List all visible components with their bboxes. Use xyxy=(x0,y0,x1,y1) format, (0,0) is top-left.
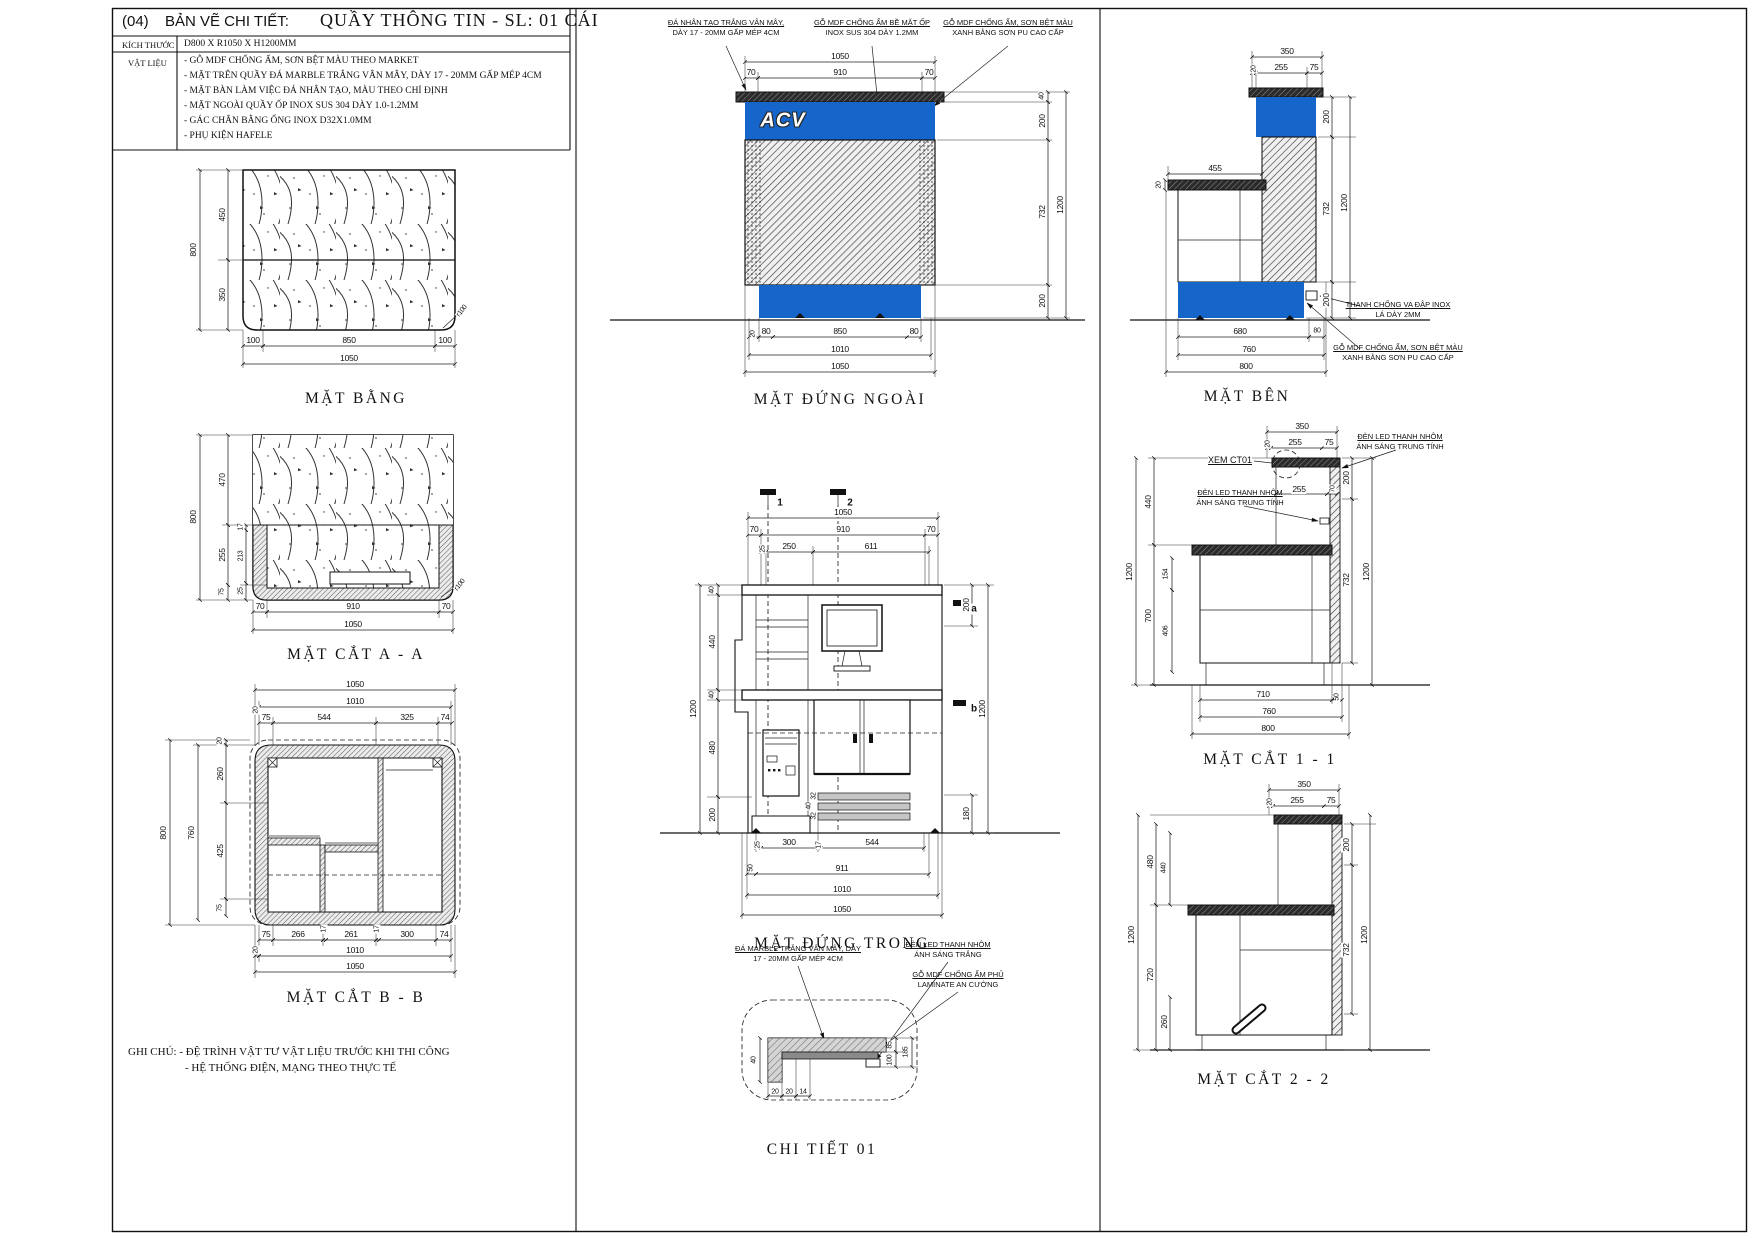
drawing-sheet: (04) BẢN VẼ CHI TIẾT: QUẦY THÔNG TIN - S… xyxy=(0,0,1755,1240)
callout-led: ĐÈN LED THANH NHÔM ÁNH SÁNG TRẮNG xyxy=(905,940,990,960)
callout-led: ĐÈN LED THANH NHÔM ÁNH SÁNG TRUNG TÍNH xyxy=(1196,488,1283,508)
callout-text: ĐÈN LED THANH NHÔM xyxy=(1356,432,1443,442)
view-label-mat-cat-11: MẶT CẮT 1 - 1 xyxy=(1203,751,1337,769)
callout-text: LÁ DÀY 2MM xyxy=(1346,310,1451,320)
dim-label: 732 xyxy=(1341,572,1351,587)
dim-label: 74 xyxy=(439,929,450,939)
callout-mdf-blue: GỖ MDF CHỐNG ẨM, SƠN BỆT MÀU XANH BẰNG S… xyxy=(943,18,1073,38)
dim-label: 74 xyxy=(440,712,451,722)
mat-cat-aa-drawing xyxy=(196,435,455,634)
dim-label: 1200 xyxy=(1359,925,1369,945)
dim-label: 25 xyxy=(760,544,767,553)
callout-text: ÁNH SÁNG TRUNG TÍNH xyxy=(1356,442,1443,452)
dim-label: 732 xyxy=(1341,942,1351,957)
dim-label: 850 xyxy=(341,335,356,345)
dim-label: 70 xyxy=(255,601,266,611)
dim-label: 350 xyxy=(217,287,227,302)
dim-label: 800 xyxy=(158,825,168,840)
dim-label: 213 xyxy=(238,550,245,563)
callout-text: DÀY 17 - 20MM GẤP MÉP 4CM xyxy=(668,28,784,38)
callout-text: ĐÁ NHÂN TẠO TRẮNG VÂN MÂY, xyxy=(668,18,784,28)
detail-reference: XEM CT01 xyxy=(1208,455,1252,465)
callout-stone: ĐÁ NHÂN TẠO TRẮNG VÂN MÂY, DÀY 17 - 20MM… xyxy=(668,18,784,38)
dim-label: 200 xyxy=(1341,837,1351,852)
dim-label: 300 xyxy=(781,837,796,847)
callout-text: XANH BẰNG SƠN PU CAO CẤP xyxy=(1333,353,1463,363)
callout-inox: GỖ MDF CHỐNG ẨM BỀ MẶT ỐP INOX SUS 304 D… xyxy=(814,18,930,38)
dim-label: 760 xyxy=(1241,344,1256,354)
view-label-mat-cat-22: MẶT CẮT 2 - 2 xyxy=(1197,1071,1331,1089)
dim-label: 710 xyxy=(1255,689,1270,699)
size-value: D800 X R1050 X H1200MM xyxy=(184,39,296,49)
dim-label: 800 xyxy=(1238,361,1253,371)
dim-label: 255 xyxy=(217,547,227,562)
dim-label: 20 xyxy=(1265,439,1272,448)
dim-label: 1010 xyxy=(345,945,365,955)
dim-label: 455 xyxy=(1207,163,1222,173)
callout-text: ĐÈN LED THANH NHÔM xyxy=(1196,488,1283,498)
material-line: - GÁC CHÂN BẰNG ỐNG INOX D32X1.0MM xyxy=(184,116,372,126)
dim-label: 50 xyxy=(748,863,755,872)
dim-label: 70 xyxy=(926,524,937,534)
dim-label: 1200 xyxy=(977,699,987,719)
dim-label: 75 xyxy=(1309,62,1320,72)
dim-label: 20 xyxy=(750,329,757,338)
dim-label: 200 xyxy=(707,807,717,822)
dim-label: 440 xyxy=(1161,862,1168,875)
dim-label: 470 xyxy=(217,472,227,487)
callout-inox-guard: THANH CHỐNG VA ĐẬP INOX LÁ DÀY 2MM xyxy=(1346,300,1451,320)
dim-label: 40 xyxy=(751,1055,758,1064)
dim-label: 75 xyxy=(261,929,272,939)
dim-label: 850 xyxy=(832,326,847,336)
dim-label: 680 xyxy=(1232,326,1247,336)
dim-label: 425 xyxy=(215,843,225,858)
sheet-title: QUẦY THÔNG TIN - SL: 01 CÁI xyxy=(320,10,599,31)
dim-label: 75 xyxy=(261,712,272,722)
callout-text: GỖ MDF CHỐNG ẨM PHỦ xyxy=(912,970,1003,980)
dim-label: 25 xyxy=(238,586,245,595)
callout-text: INOX SUS 304 DÀY 1.2MM xyxy=(814,28,930,38)
dim-label: 50 xyxy=(1334,692,1341,701)
dim-label: 732 xyxy=(1037,204,1047,219)
dim-label: 20 xyxy=(784,1089,793,1096)
dim-label: 75 xyxy=(1326,795,1337,805)
dim-label: 800 xyxy=(188,509,198,524)
dim-label: 75 xyxy=(1324,437,1335,447)
mat-ben-drawing xyxy=(1130,51,1430,377)
dim-label: 760 xyxy=(1261,706,1276,716)
dim-label: 180 xyxy=(961,806,971,821)
dim-label: 800 xyxy=(1260,723,1275,733)
dim-label: 70 xyxy=(924,67,935,77)
dim-label: 200 xyxy=(1037,293,1047,308)
dim-label: 350 xyxy=(1296,779,1311,789)
dim-label: 1050 xyxy=(830,51,850,61)
dim-label: 406 xyxy=(1163,625,1170,638)
callout-text: 17 - 20MM GẤP MÉP 4CM xyxy=(735,954,861,964)
dim-label: 1200 xyxy=(1055,195,1065,215)
dim-label: 544 xyxy=(864,837,879,847)
dim-label: 1010 xyxy=(830,344,850,354)
dim-label: 40 xyxy=(806,801,813,810)
view-label-chi-tiet-01: CHI TIẾT 01 xyxy=(767,1141,877,1159)
dim-label: 1200 xyxy=(1339,193,1349,213)
dim-label: 70 xyxy=(746,67,757,77)
dim-label: 1200 xyxy=(1126,925,1136,945)
dim-label: 1050 xyxy=(343,619,363,629)
mat-cat-bb-drawing xyxy=(165,684,460,978)
dim-label: 1050 xyxy=(345,961,365,971)
dim-label: 17 xyxy=(374,924,381,933)
dim-label: 85 xyxy=(887,1040,894,1049)
dim-label: 480 xyxy=(1145,854,1155,869)
view-label-mat-dung-ngoai: MẶT ĐỨNG NGOÀI xyxy=(754,391,926,409)
dim-label: 100 xyxy=(887,1054,894,1067)
dim-label: 20 xyxy=(1251,64,1258,73)
callout-text: ÁNH SÁNG TRUNG TÍNH xyxy=(1196,498,1283,508)
dim-label: 20 xyxy=(253,705,260,714)
dim-label: 800 xyxy=(188,242,198,257)
callout-text: XANH BẰNG SƠN PU CAO CẤP xyxy=(943,28,1073,38)
mat-dung-trong-drawing xyxy=(660,489,1060,919)
dim-label: 910 xyxy=(832,67,847,77)
dim-label: 70 xyxy=(441,601,452,611)
dim-label: 200 xyxy=(1321,292,1331,307)
dim-label: 266 xyxy=(290,929,305,939)
dim-label: 1050 xyxy=(339,353,359,363)
dim-label: 255 xyxy=(1287,437,1302,447)
dim-label: 1200 xyxy=(1361,562,1371,582)
dim-label: 80 xyxy=(761,326,772,336)
view-label-mat-ben: MẶT BÊN xyxy=(1204,388,1291,406)
dim-label: 440 xyxy=(707,634,717,649)
material-label: VẬT LIỆU xyxy=(128,58,167,68)
dim-label: 732 xyxy=(1321,201,1331,216)
dim-label: 100 xyxy=(437,335,452,345)
dim-label: 910 xyxy=(345,601,360,611)
dim-label: 700 xyxy=(1143,608,1153,623)
dim-label: 70 xyxy=(1330,484,1337,493)
dim-label: 17 xyxy=(816,840,823,849)
size-label: KÍCH THƯỚC xyxy=(122,40,174,50)
callout-led: ĐÈN LED THANH NHÔM ÁNH SÁNG TRUNG TÍNH xyxy=(1356,432,1443,452)
dim-label: 14 xyxy=(798,1089,807,1096)
mat-cat-22-drawing xyxy=(1133,784,1430,1050)
dim-label: 17 xyxy=(321,924,328,933)
callout-text: LAMINATE AN CƯỜNG xyxy=(912,980,1003,990)
dim-label: 25 xyxy=(755,840,762,849)
dim-label: 75 xyxy=(219,587,226,596)
dim-label: 200 xyxy=(1321,109,1331,124)
dim-label: 185 xyxy=(903,1046,910,1059)
dim-label: 611 xyxy=(864,541,879,551)
dim-label: 1200 xyxy=(688,699,698,719)
dim-label: 480 xyxy=(707,740,717,755)
dim-label: 154 xyxy=(1163,568,1170,581)
dim-label: 250 xyxy=(781,541,796,551)
dim-label: 1010 xyxy=(345,696,365,706)
dim-label: 300 xyxy=(399,929,414,939)
dim-label: 350 xyxy=(1294,421,1309,431)
dim-label: 40 xyxy=(709,690,716,699)
dim-label: 20 xyxy=(217,736,224,745)
dim-label: 1200 xyxy=(1124,562,1134,582)
note-line-2: - HỆ THỐNG ĐIỆN, MẠNG THEO THỰC TẾ xyxy=(185,1062,396,1074)
dim-label: 440 xyxy=(1143,494,1153,509)
dim-label: 1050 xyxy=(345,679,365,689)
dim-label: 544 xyxy=(316,712,331,722)
callout-text: GỖ MDF CHỐNG ẨM, SƠN BỆT MÀU xyxy=(943,18,1073,28)
dim-label: 70 xyxy=(749,524,760,534)
dim-label: 40 xyxy=(709,585,716,594)
material-line: - MẶT TRÊN QUẦY ĐÁ MARBLE TRẮNG VÂN MÂY,… xyxy=(184,71,542,81)
dim-label: 200 xyxy=(1037,113,1047,128)
callout-text: GỖ MDF CHỐNG ẨM, SƠN BỆT MÀU xyxy=(1333,343,1463,353)
dim-label: 1050 xyxy=(832,904,852,914)
dim-label: 20 xyxy=(1267,797,1274,806)
material-line: - MẶT NGOÀI QUẦY ỐP INOX SUS 304 DÀY 1.0… xyxy=(184,101,418,111)
callout-text: GỖ MDF CHỐNG ẨM BỀ MẶT ỐP xyxy=(814,18,930,28)
view-label-mat-bang: MẶT BẰNG xyxy=(305,390,407,408)
section-marker-a: a xyxy=(971,604,977,615)
dim-label: 17 xyxy=(238,522,245,531)
dim-label: 1050 xyxy=(830,361,850,371)
mat-cat-11-drawing xyxy=(1131,426,1430,739)
dim-label: 80 xyxy=(909,326,920,336)
dim-label: 80 xyxy=(1312,328,1321,335)
dim-label: 255 xyxy=(1273,62,1288,72)
dim-label: 261 xyxy=(343,929,358,939)
dim-label: 20 xyxy=(253,945,260,954)
callout-mdf: GỖ MDF CHỐNG ẨM PHỦ LAMINATE AN CƯỜNG xyxy=(912,970,1003,990)
dim-label: 20 xyxy=(1156,180,1163,189)
acv-logo: ACV xyxy=(760,110,805,133)
dim-label: 255 xyxy=(1291,484,1306,494)
dim-label: 1010 xyxy=(832,884,852,894)
callout-text: THANH CHỐNG VA ĐẬP INOX xyxy=(1346,300,1451,310)
dim-label: 40 xyxy=(1039,91,1046,100)
sheet-index: (04) xyxy=(122,13,149,30)
callout-text: ÁNH SÁNG TRẮNG xyxy=(905,950,990,960)
dim-label: 450 xyxy=(217,207,227,222)
view-label-mat-cat-bb: MẶT CẮT B - B xyxy=(287,989,426,1007)
dim-label: 1050 xyxy=(833,507,853,517)
section-marker-1: 1 xyxy=(777,498,783,509)
dim-label: 200 xyxy=(1341,470,1351,485)
dim-label: 32 xyxy=(811,791,818,800)
material-line: - MẶT BÀN LÀM VIỆC ĐÁ NHÂN TẠO, MÀU THEO… xyxy=(184,86,448,96)
dim-label: 325 xyxy=(399,712,414,722)
material-line: - PHỤ KIỆN HAFELE xyxy=(184,131,272,141)
dim-label: 720 xyxy=(1145,967,1155,982)
dim-label: 255 xyxy=(1289,795,1304,805)
dim-label: 32 xyxy=(811,811,818,820)
view-label-mat-cat-aa: MẶT CẮT A - A xyxy=(287,646,425,664)
dim-label: 910 xyxy=(835,524,850,534)
dim-label: 100 xyxy=(245,335,260,345)
dim-label: 760 xyxy=(186,825,196,840)
dim-label: 20 xyxy=(770,1089,779,1096)
callout-text: ĐÈN LED THANH NHÔM xyxy=(905,940,990,950)
dim-label: 911 xyxy=(835,863,850,873)
material-line: - GỖ MDF CHỐNG ẨM, SƠN BỆT MÀU THEO MARK… xyxy=(184,56,419,66)
dim-label: 260 xyxy=(1159,1014,1169,1029)
callout-stone: ĐÁ MARBLE TRẮNG VÂN MÂY, DÀY 17 - 20MM G… xyxy=(735,944,861,964)
callout-mdf-blue: GỖ MDF CHỐNG ẨM, SƠN BỆT MÀU XANH BẰNG S… xyxy=(1333,343,1463,363)
dim-label: 200 xyxy=(961,597,971,612)
note-line-1: GHI CHÚ: - ĐỆ TRÌNH VẬT TƯ VẬT LIỆU TRƯỚ… xyxy=(128,1046,450,1058)
dim-label: 350 xyxy=(1279,46,1294,56)
dim-label: 260 xyxy=(215,766,225,781)
mat-bang-drawing xyxy=(196,170,457,368)
sheet-type-label: BẢN VẼ CHI TIẾT: xyxy=(165,13,289,30)
callout-text: ĐÁ MARBLE TRẮNG VÂN MÂY, DÀY xyxy=(735,944,861,954)
dim-label: 75 xyxy=(217,903,224,912)
